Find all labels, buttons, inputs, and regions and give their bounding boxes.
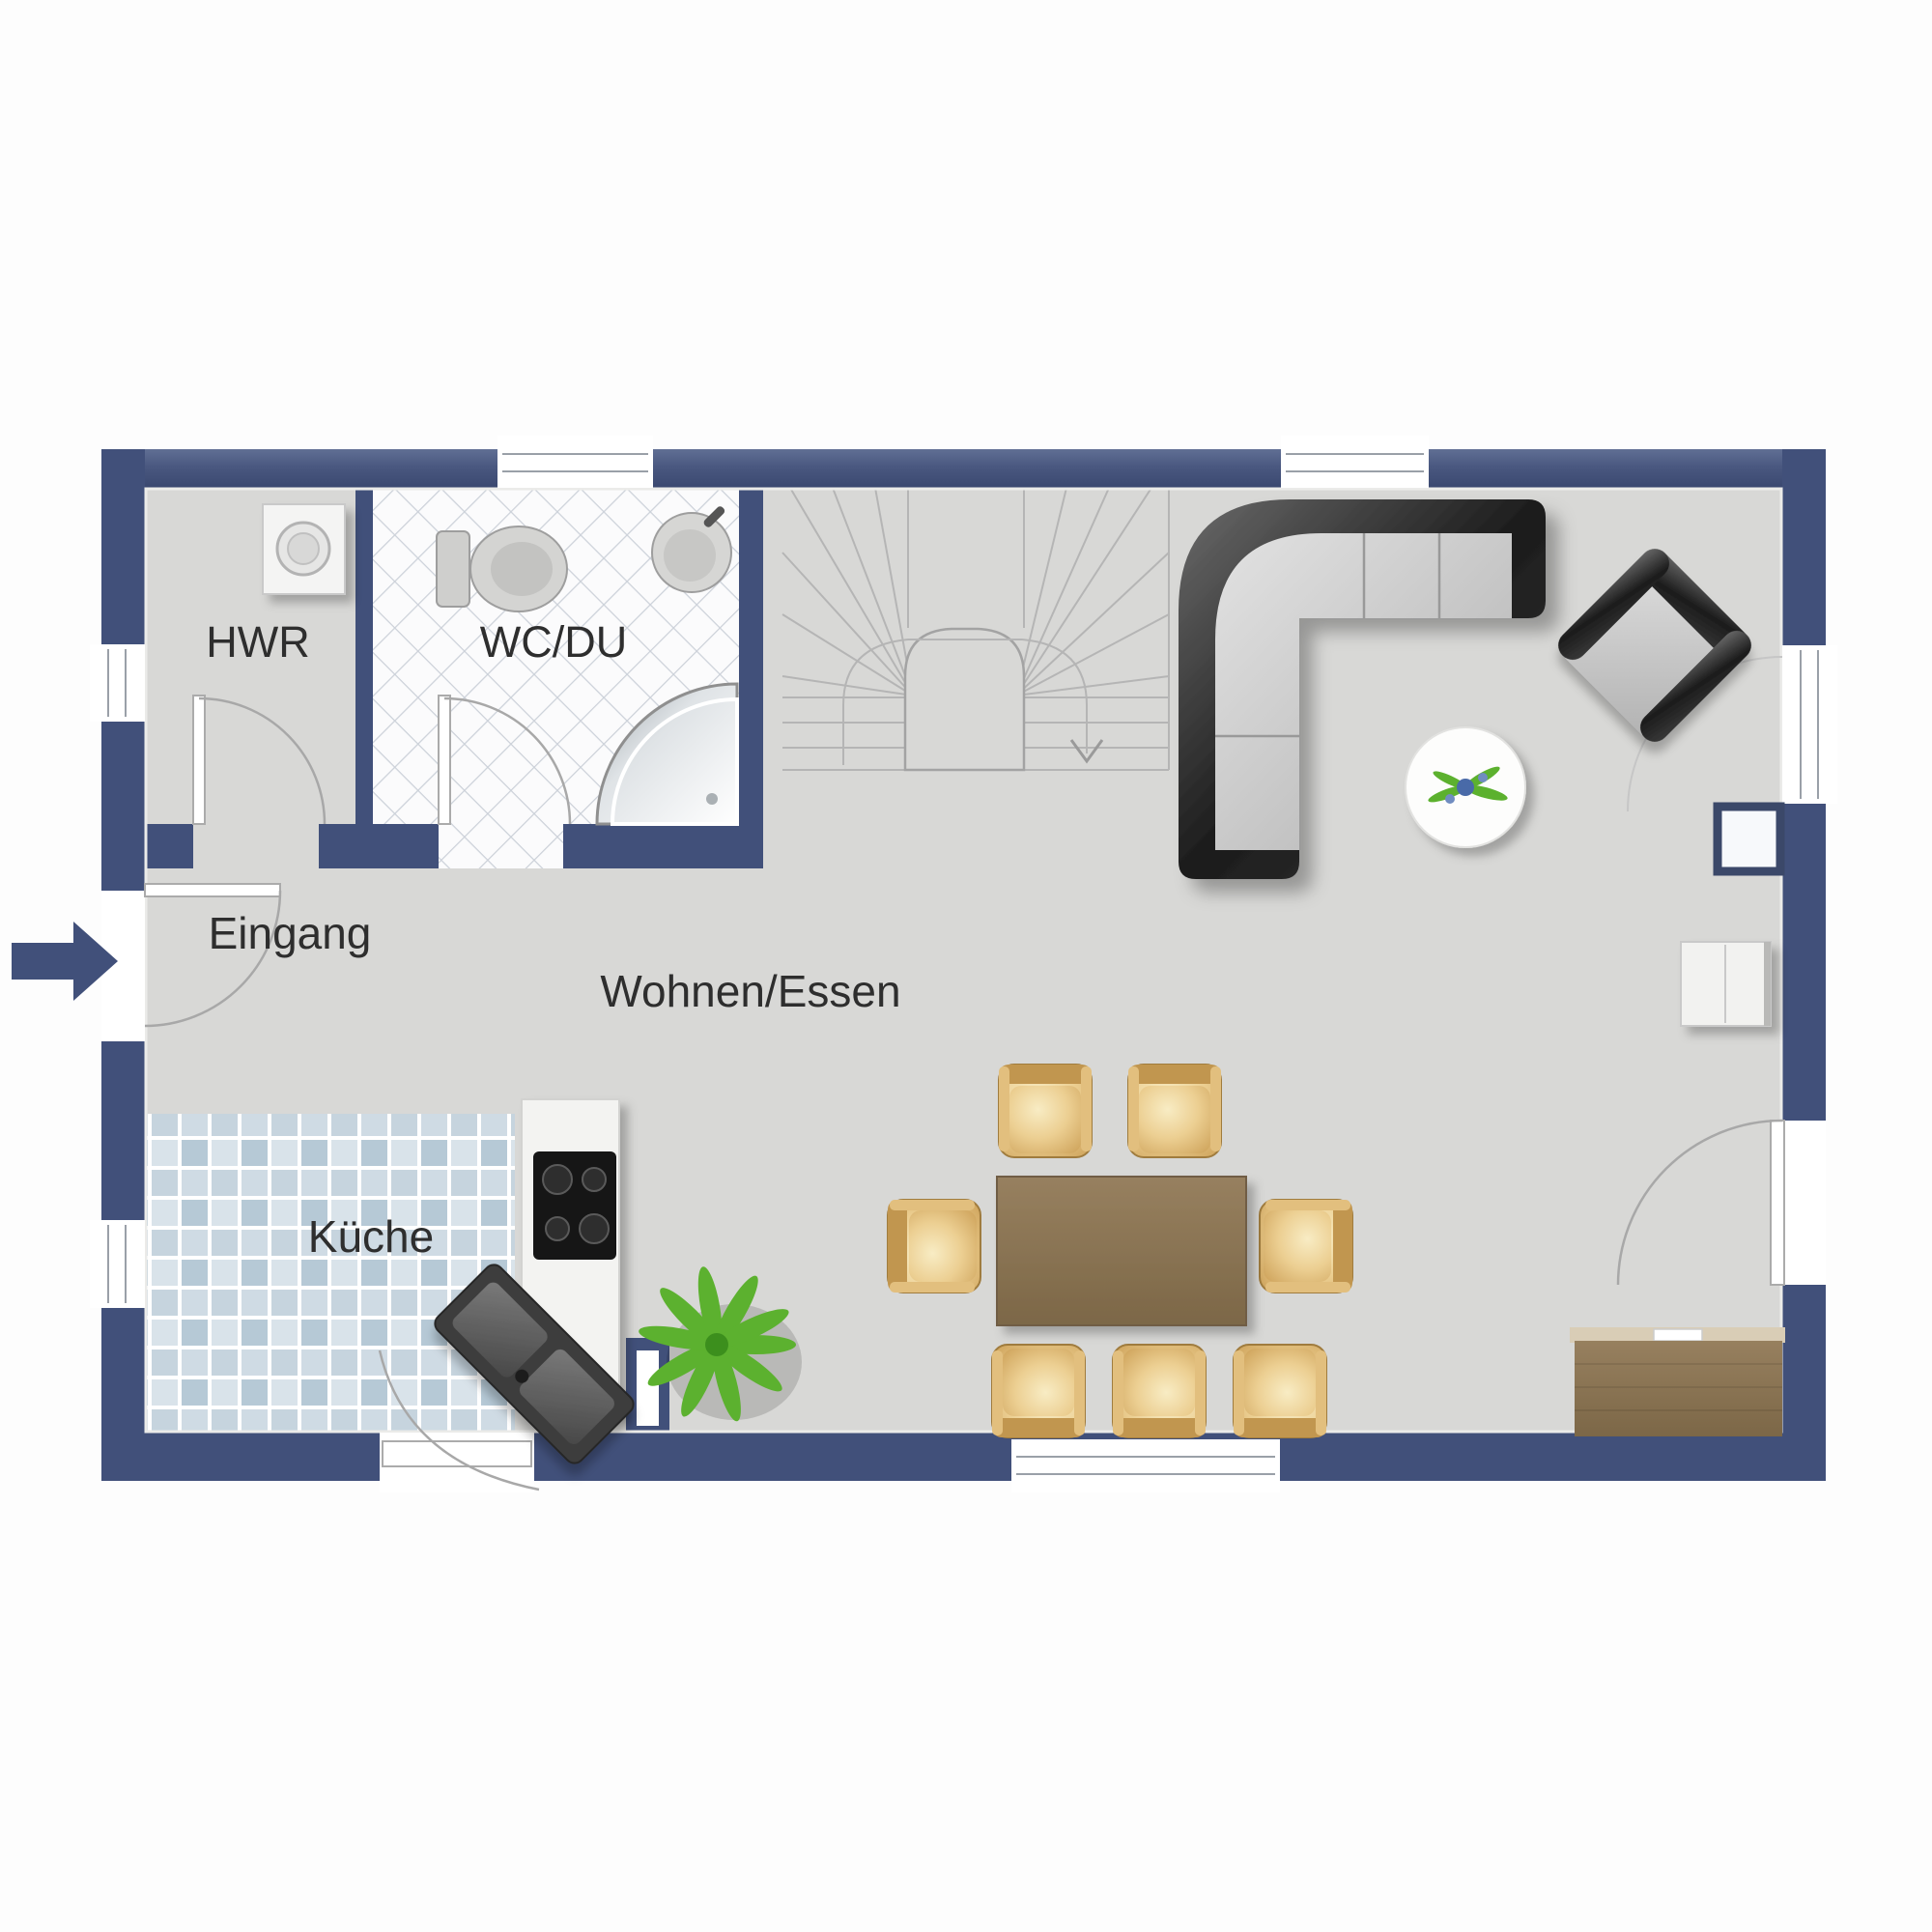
dining-chair xyxy=(999,1065,1092,1157)
wall-shaft-slot xyxy=(637,1350,659,1426)
coffee-table xyxy=(1406,727,1525,847)
room-label-living: Wohnen/Essen xyxy=(600,966,900,1016)
chimney-shaft xyxy=(1718,807,1780,871)
dining-chair xyxy=(1234,1345,1326,1437)
washing-machine xyxy=(263,504,345,594)
room-label-entrance: Eingang xyxy=(209,908,372,958)
sideboard xyxy=(1570,1327,1785,1436)
floor-plan-drawing: HWR WC/DU Eingang Wohnen/Essen Küche xyxy=(0,0,1932,1932)
dining-table xyxy=(997,1177,1246,1325)
cooktop xyxy=(533,1151,616,1260)
window-kitchen xyxy=(90,1220,145,1308)
dresser xyxy=(1681,942,1771,1026)
room-label-hwr: HWR xyxy=(206,617,309,667)
window-living-top xyxy=(1281,436,1429,488)
dining-chair xyxy=(1113,1345,1206,1437)
toilet xyxy=(437,526,567,611)
kitchen-tiled-floor xyxy=(147,1114,515,1433)
window-hwr xyxy=(90,644,145,722)
window-dining xyxy=(1011,1439,1280,1492)
floor-plan: HWR WC/DU Eingang Wohnen/Essen Küche xyxy=(0,0,1932,1932)
dining-chair xyxy=(1260,1200,1352,1293)
room-label-kitchen: Küche xyxy=(308,1211,434,1262)
dining-chair xyxy=(888,1200,980,1293)
dining-chair xyxy=(992,1345,1085,1437)
room-label-wc: WC/DU xyxy=(480,617,627,667)
window-wc xyxy=(497,436,653,488)
dining-chair xyxy=(1128,1065,1221,1157)
